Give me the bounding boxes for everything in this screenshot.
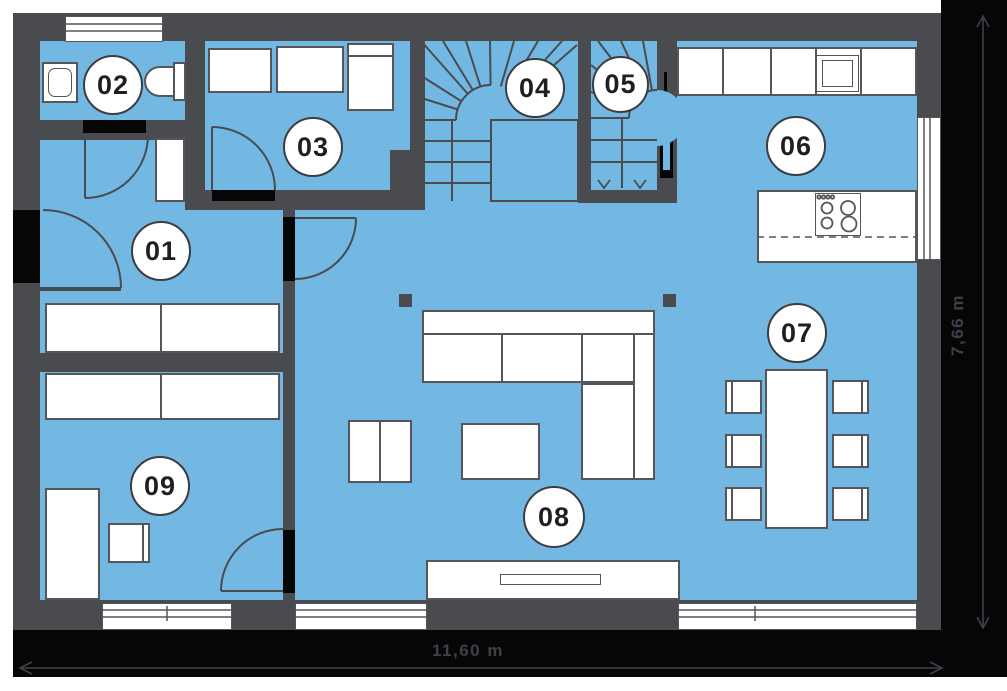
sofa-seat-chaise bbox=[581, 383, 635, 480]
room-badge-03: 03 bbox=[283, 117, 343, 177]
dining-table bbox=[765, 369, 828, 529]
tv bbox=[500, 574, 601, 585]
wall-under-05 bbox=[578, 190, 677, 203]
room-badge-08: 08 bbox=[523, 486, 585, 548]
coffee-table bbox=[461, 423, 540, 480]
window-bottom-dining bbox=[678, 603, 917, 630]
kitchen-counter-divider bbox=[860, 49, 862, 94]
desk-09 bbox=[45, 488, 100, 600]
window-bottom-living-left bbox=[295, 603, 427, 630]
sofa-back-top bbox=[422, 310, 655, 335]
door-threshold-living bbox=[283, 217, 295, 281]
side-table-left bbox=[348, 420, 381, 483]
kitchen-sink-basin bbox=[822, 60, 853, 87]
sofa-seat-1 bbox=[422, 333, 503, 383]
window-bottom-09 bbox=[102, 603, 232, 630]
dimension-label-height: 7,66 m bbox=[948, 280, 968, 370]
kitchen-counter bbox=[677, 47, 917, 96]
sofa-back-right bbox=[633, 333, 655, 480]
wall-stairs-left bbox=[410, 41, 425, 203]
floor-plan: 11,60 m 7,66 m 01 02 03 04 05 06 07 08 0… bbox=[0, 0, 1007, 691]
kitchen-counter-divider bbox=[770, 49, 772, 94]
sink-basin bbox=[48, 68, 72, 97]
desk-03-right bbox=[276, 46, 344, 93]
wall-04-05-divider bbox=[578, 41, 591, 190]
wardrobe-09-left bbox=[45, 373, 162, 420]
wardrobe-09-right bbox=[160, 373, 280, 420]
bed-03 bbox=[347, 43, 394, 111]
sofa-seat-2 bbox=[501, 333, 583, 383]
door-threshold-bath bbox=[83, 120, 146, 133]
pocket-door-slot bbox=[663, 128, 670, 170]
wall-02-03-divider bbox=[185, 41, 205, 210]
wall-01-09-divider bbox=[40, 353, 295, 372]
pocket-door-rail bbox=[664, 72, 667, 113]
dining-chair bbox=[832, 380, 869, 414]
desk-03-left bbox=[208, 48, 272, 93]
sofa-seat-3 bbox=[581, 333, 635, 383]
room-badge-02: 02 bbox=[83, 55, 143, 115]
wall-stairs-block bbox=[390, 150, 410, 203]
dining-chair bbox=[725, 487, 762, 521]
hall-cabinet bbox=[155, 138, 185, 202]
room-badge-05: 05 bbox=[592, 56, 649, 113]
chair-09 bbox=[108, 523, 150, 563]
dining-chair bbox=[725, 434, 762, 468]
wardrobe-01-left bbox=[45, 303, 162, 353]
dining-chair bbox=[832, 434, 869, 468]
dining-chair bbox=[725, 380, 762, 414]
dining-chair bbox=[832, 487, 869, 521]
door-threshold-09 bbox=[283, 530, 295, 593]
bed-03-pillow-line bbox=[349, 55, 392, 57]
room-badge-09: 09 bbox=[130, 456, 190, 516]
room-badge-01: 01 bbox=[131, 221, 191, 281]
entrance-door-leaf bbox=[13, 210, 40, 283]
room-badge-04: 04 bbox=[505, 58, 565, 118]
door-threshold-03 bbox=[212, 190, 275, 201]
cooktop bbox=[815, 193, 861, 236]
wardrobe-01-right bbox=[160, 303, 280, 353]
window-top bbox=[65, 16, 163, 42]
window-right-kitchen bbox=[917, 117, 941, 260]
room-badge-07: 07 bbox=[767, 303, 827, 363]
kitchen-counter-divider bbox=[722, 49, 724, 94]
dimension-label-width: 11,60 m bbox=[398, 641, 538, 661]
side-table-right bbox=[379, 420, 412, 483]
column-post-left bbox=[399, 294, 412, 307]
room-badge-06: 06 bbox=[766, 116, 826, 176]
column-post-right bbox=[663, 294, 676, 307]
